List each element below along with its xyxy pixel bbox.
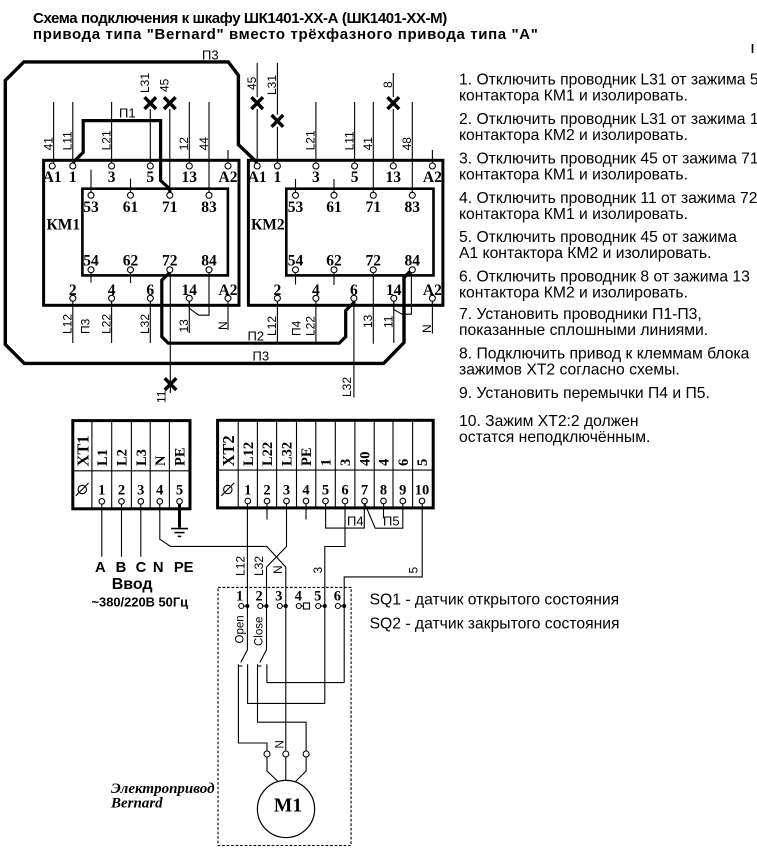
svg-text:SQ1 - датчик открытого состоян: SQ1 - датчик открытого состояния: [370, 592, 620, 609]
svg-text:SQ2 - датчик закрытого состоян: SQ2 - датчик закрытого состояния: [370, 616, 620, 633]
svg-text:45: 45: [158, 78, 172, 92]
svg-text:83: 83: [201, 199, 217, 216]
svg-text:45: 45: [245, 76, 259, 90]
svg-text:53: 53: [288, 199, 304, 216]
svg-text:N: N: [275, 740, 287, 748]
svg-text:10: 10: [415, 483, 430, 499]
svg-text:41: 41: [361, 137, 375, 151]
svg-text:71: 71: [162, 199, 178, 216]
svg-text:1: 1: [319, 459, 335, 466]
svg-text:3: 3: [338, 459, 354, 466]
svg-text:контактора КМ1 и изолировать.: контактора КМ1 и изолировать.: [459, 206, 688, 223]
svg-text:М1: М1: [274, 796, 302, 817]
svg-text:5. Отключить проводник 45 от з: 5. Отключить проводник 45 от зажима: [459, 229, 737, 246]
svg-text:L11: L11: [61, 131, 75, 150]
svg-text:L1: L1: [95, 449, 111, 466]
svg-text:8: 8: [381, 81, 395, 88]
svg-text:13: 13: [182, 169, 198, 186]
svg-text:ХТ1: ХТ1: [74, 435, 93, 466]
svg-text:П3: П3: [253, 349, 270, 364]
svg-text:Схема подключения к шкафу ШК14: Схема подключения к шкафу ШК1401-ХХ-А (Ш…: [33, 10, 447, 27]
svg-text:П2: П2: [248, 329, 265, 344]
svg-text:L3: L3: [134, 449, 150, 466]
svg-text:7: 7: [361, 483, 368, 499]
svg-text:П3: П3: [79, 318, 93, 334]
svg-text:N: N: [216, 321, 230, 330]
svg-text:3: 3: [137, 483, 144, 499]
svg-text:1: 1: [236, 589, 243, 605]
svg-text:L22: L22: [304, 316, 318, 336]
svg-text:L2: L2: [115, 449, 131, 466]
svg-text:Close: Close: [254, 617, 266, 646]
svg-text:11: 11: [382, 315, 396, 328]
svg-text:53: 53: [83, 199, 99, 216]
svg-text:3: 3: [275, 589, 282, 605]
svg-text:~380/220В 50Гц: ~380/220В 50Гц: [92, 594, 189, 609]
svg-text:PE: PE: [299, 447, 315, 466]
svg-text:5: 5: [146, 169, 154, 186]
svg-text:3: 3: [108, 169, 116, 186]
svg-text:11: 11: [155, 390, 169, 403]
svg-text:L22: L22: [260, 442, 276, 466]
svg-text:4: 4: [295, 589, 302, 605]
svg-text:6. Отключить проводник 8 от за: 6. Отключить проводник 8 от зажима 13: [459, 269, 750, 286]
svg-text:1: 1: [244, 483, 251, 499]
svg-text:П3: П3: [202, 48, 219, 63]
svg-text:2: 2: [255, 589, 262, 605]
svg-text:1. Отключить проводник L31 от: 1. Отключить проводник L31 от зажима 5: [459, 72, 757, 89]
svg-text:L31: L31: [265, 75, 279, 95]
svg-text:L32: L32: [280, 442, 296, 466]
svg-text:Open: Open: [235, 615, 247, 643]
svg-text:13: 13: [177, 319, 191, 333]
svg-text:5: 5: [351, 169, 359, 186]
svg-text:L21: L21: [304, 130, 318, 150]
svg-text:N: N: [420, 324, 434, 333]
svg-text:П4: П4: [347, 514, 364, 529]
svg-text:А1 контактора КМ2 и изолироват: А1 контактора КМ2 и изолировать.: [459, 245, 711, 262]
svg-text:4: 4: [377, 459, 393, 466]
svg-text:4: 4: [302, 483, 309, 499]
svg-text:РЕ: РЕ: [174, 560, 194, 576]
svg-text:контактора КМ1 и изолировать.: контактора КМ1 и изолировать.: [459, 166, 688, 183]
svg-text:3: 3: [283, 483, 290, 499]
svg-text:4: 4: [156, 483, 163, 499]
svg-text:L32: L32: [340, 377, 354, 397]
svg-text:П4: П4: [290, 320, 304, 336]
svg-text:5: 5: [176, 483, 183, 499]
svg-text:6: 6: [334, 589, 341, 605]
svg-text:9. Установить перемычки П4 и П: 9. Установить перемычки П4 и П5.: [459, 385, 710, 402]
svg-text:PE: PE: [173, 447, 189, 466]
svg-text:В: В: [116, 560, 127, 576]
svg-text:3: 3: [312, 169, 320, 186]
svg-text:N: N: [153, 560, 164, 576]
svg-text:L32: L32: [252, 556, 266, 576]
svg-text:А: А: [95, 560, 106, 576]
svg-text:А2: А2: [219, 169, 238, 186]
svg-text:3. Отключить проводник 45 от з: 3. Отключить проводник 45 от зажима 71: [459, 150, 757, 167]
svg-text:L11: L11: [342, 131, 356, 150]
svg-text:5: 5: [322, 483, 329, 499]
svg-text:L32: L32: [138, 314, 152, 334]
svg-text:А2: А2: [423, 169, 442, 186]
svg-text:П1: П1: [119, 106, 136, 121]
svg-text:8. Подключить привод к клеммам: 8. Подключить привод к клеммам блока: [459, 346, 750, 363]
svg-text:1: 1: [69, 169, 77, 186]
svg-text:2: 2: [118, 483, 125, 499]
svg-text:40: 40: [358, 452, 374, 467]
svg-text:13: 13: [361, 314, 375, 328]
svg-text:показанные сплошными линиями.: показанные сплошными линиями.: [459, 322, 708, 339]
svg-text:83: 83: [405, 199, 421, 216]
svg-text:КМ2: КМ2: [251, 217, 285, 234]
svg-text:8: 8: [380, 483, 387, 499]
svg-text:ХТ2: ХТ2: [219, 435, 238, 466]
svg-text:1: 1: [274, 169, 282, 186]
svg-text:5: 5: [415, 459, 431, 466]
svg-text:10. Зажим ХТ2:2 должен: 10. Зажим ХТ2:2 должен: [459, 413, 639, 430]
svg-text:L12: L12: [61, 314, 75, 334]
svg-text:N: N: [271, 565, 285, 574]
svg-text:48: 48: [400, 137, 414, 151]
svg-text:4. Отключить проводник 11 от з: 4. Отключить проводник 11 от зажима 72: [459, 190, 757, 207]
svg-text:П5: П5: [383, 514, 400, 529]
svg-text:L31: L31: [138, 73, 152, 93]
svg-text:61: 61: [326, 199, 342, 216]
svg-text:12: 12: [177, 137, 191, 151]
svg-text:Ввод: Ввод: [112, 576, 153, 593]
svg-text:остатся неподключённым.: остатся неподключённым.: [459, 429, 650, 446]
svg-text:2: 2: [263, 483, 270, 499]
svg-text:44: 44: [197, 137, 211, 151]
svg-text:С: С: [136, 560, 147, 576]
svg-text:А1: А1: [248, 169, 267, 186]
svg-text:6: 6: [396, 459, 412, 466]
svg-text:L12: L12: [265, 316, 279, 336]
svg-text:КМ1: КМ1: [47, 217, 81, 234]
svg-text:привода типа "Bernard" вместо: привода типа "Bernard" вместо трёхфазног…: [33, 26, 539, 43]
svg-text:L22: L22: [99, 314, 113, 334]
svg-text:L12: L12: [234, 556, 248, 576]
svg-text:71: 71: [366, 199, 382, 216]
svg-text:А1: А1: [43, 169, 62, 186]
svg-text:контактора КМ2 и изолировать.: контактора КМ2 и изолировать.: [459, 285, 688, 302]
svg-text:6: 6: [341, 483, 348, 499]
svg-text:зажимов ХТ2 согласно схемы.: зажимов ХТ2 согласно схемы.: [459, 362, 680, 379]
svg-text:L21: L21: [99, 130, 113, 150]
svg-text:контактора КМ2 и изолировать.: контактора КМ2 и изолировать.: [459, 127, 688, 144]
svg-text:13: 13: [386, 169, 402, 186]
svg-text:5: 5: [314, 589, 321, 605]
svg-text:61: 61: [123, 199, 139, 216]
svg-text:7. Установить проводники П1-П3: 7. Установить проводники П1-П3,: [459, 306, 702, 323]
svg-text:контактора КМ1 и изолировать.: контактора КМ1 и изолировать.: [459, 88, 688, 105]
svg-text:1: 1: [98, 483, 105, 499]
svg-text:5: 5: [407, 567, 421, 574]
svg-text:41: 41: [41, 137, 55, 151]
svg-text:2. Отключить проводник L31 от: 2. Отключить проводник L31 от зажима 1: [459, 111, 757, 128]
svg-text:9: 9: [399, 483, 406, 499]
svg-text:N: N: [153, 455, 169, 466]
svg-text:L12: L12: [241, 442, 257, 466]
svg-text:3: 3: [311, 567, 325, 574]
svg-text:Bernard: Bernard: [110, 796, 163, 812]
